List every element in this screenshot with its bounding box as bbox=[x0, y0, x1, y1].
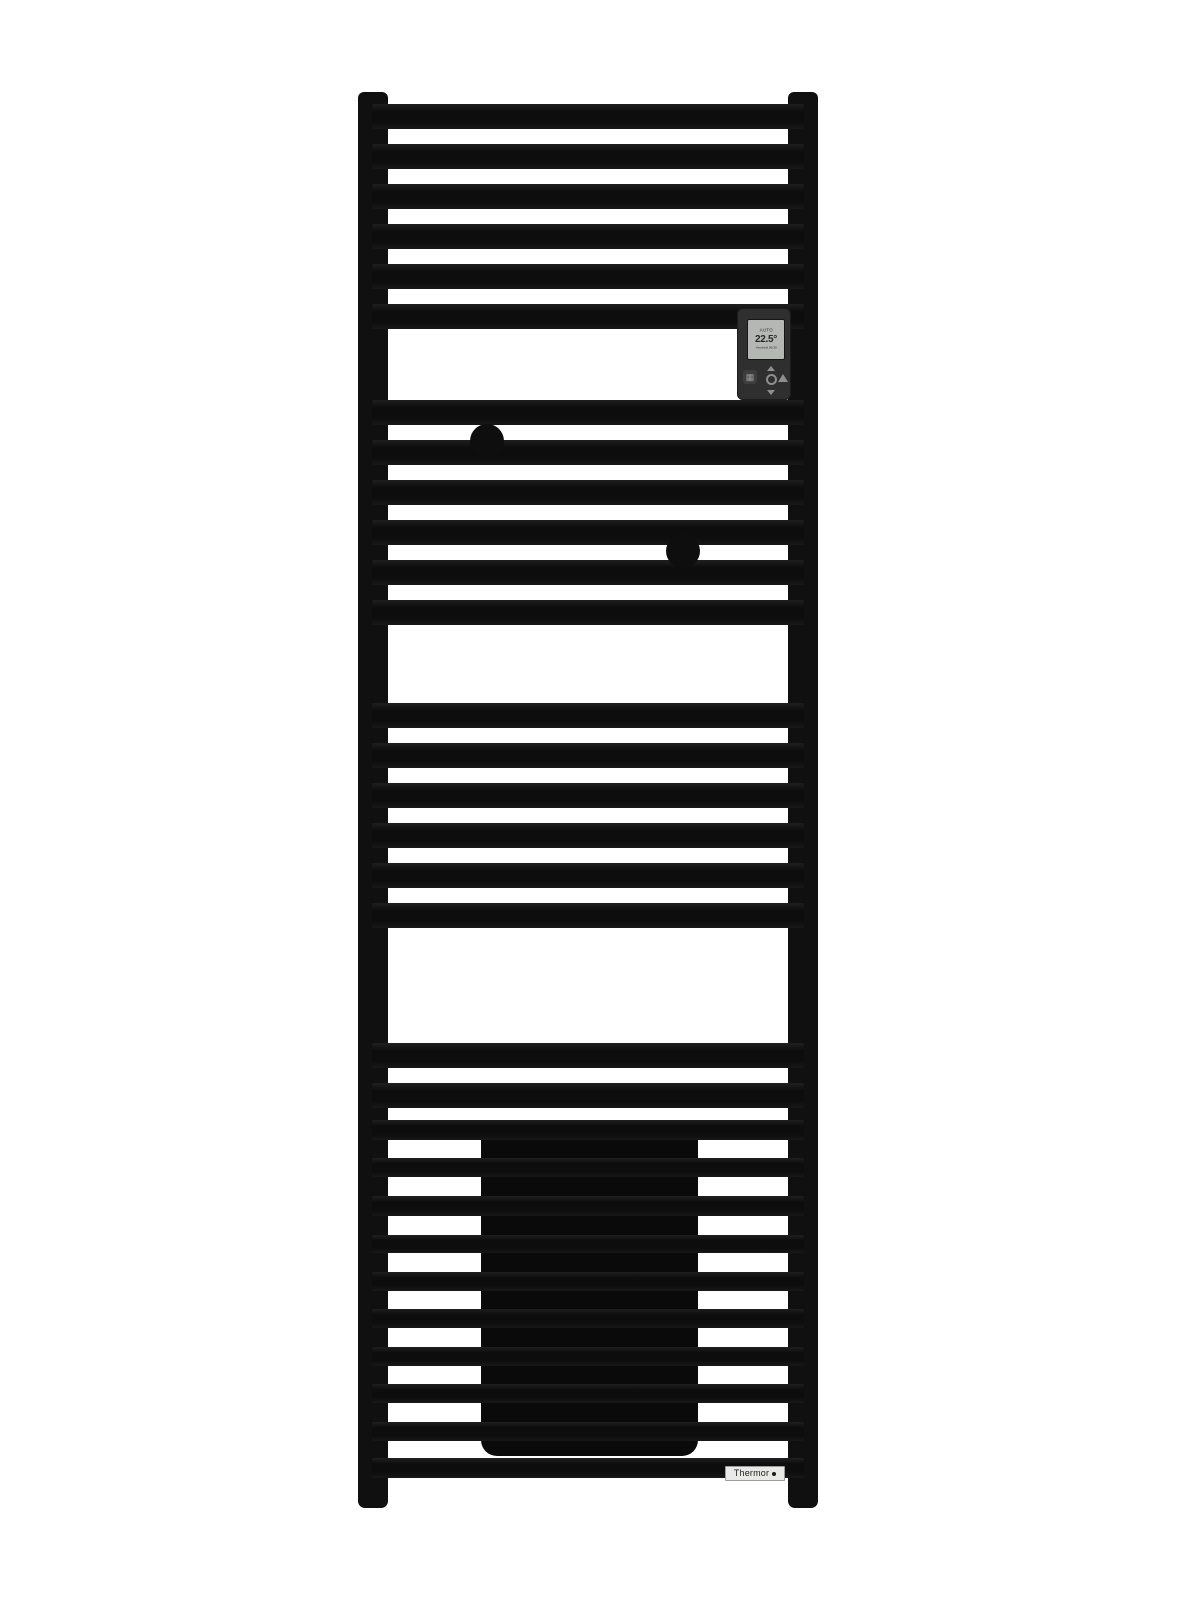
radiator-bar bbox=[372, 264, 804, 289]
radiator-bar bbox=[372, 520, 804, 545]
radiator-bar bbox=[372, 480, 804, 505]
mode-button: ▦ bbox=[743, 370, 757, 384]
radiator-bar bbox=[372, 823, 804, 848]
radiator-bar bbox=[372, 600, 804, 625]
radiator-bar bbox=[372, 743, 804, 768]
radiator-bar bbox=[372, 144, 804, 169]
ok-ring-icon bbox=[766, 374, 777, 385]
logo-dot-icon bbox=[772, 1472, 776, 1476]
chevron-up-icon bbox=[767, 366, 775, 371]
radiator-bar bbox=[372, 1083, 804, 1108]
radiator-bar bbox=[372, 1120, 804, 1140]
mode-text: AUTO bbox=[759, 329, 772, 333]
radiator-bar bbox=[372, 184, 804, 209]
heating-panel bbox=[481, 1128, 698, 1456]
towel-hook-1 bbox=[470, 424, 504, 458]
radiator-bar bbox=[372, 1158, 804, 1177]
radiator-bar bbox=[372, 1235, 804, 1253]
control-screen: AUTO 22.5° Vendredi 06:30 bbox=[747, 319, 785, 360]
brand-label: Thermor bbox=[725, 1466, 785, 1481]
radiator-bar bbox=[372, 400, 804, 425]
radiator-bar bbox=[372, 1347, 804, 1366]
radiator-bar bbox=[372, 104, 804, 129]
product-photo: AUTO 22.5° Vendredi 06:30 ▦ Thermor bbox=[0, 0, 1200, 1600]
radiator-bar bbox=[372, 1272, 804, 1291]
temperature-text: 22.5° bbox=[755, 334, 777, 345]
radiator-bar bbox=[372, 1196, 804, 1216]
radiator-bar bbox=[372, 1043, 804, 1068]
radiator-bar bbox=[372, 903, 804, 928]
radiator-bar bbox=[372, 863, 804, 888]
radiator-bar bbox=[372, 440, 804, 465]
radiator-icon: ▦ bbox=[746, 373, 755, 382]
control-unit: AUTO 22.5° Vendredi 06:30 ▦ bbox=[737, 308, 791, 400]
radiator-bar bbox=[372, 1309, 804, 1328]
status-text: Vendredi 06:30 bbox=[756, 346, 777, 349]
radiator-bar bbox=[372, 783, 804, 808]
towel-hook-2 bbox=[666, 534, 700, 568]
radiator-bar bbox=[372, 1384, 804, 1403]
chevron-down-icon bbox=[767, 390, 775, 395]
radiator-bar bbox=[372, 560, 804, 585]
radiator-bar bbox=[372, 1422, 804, 1441]
radiator-bar bbox=[372, 703, 804, 728]
brand-text: Thermor bbox=[734, 1469, 769, 1478]
boost-icon bbox=[778, 374, 788, 382]
radiator-bar bbox=[372, 224, 804, 249]
